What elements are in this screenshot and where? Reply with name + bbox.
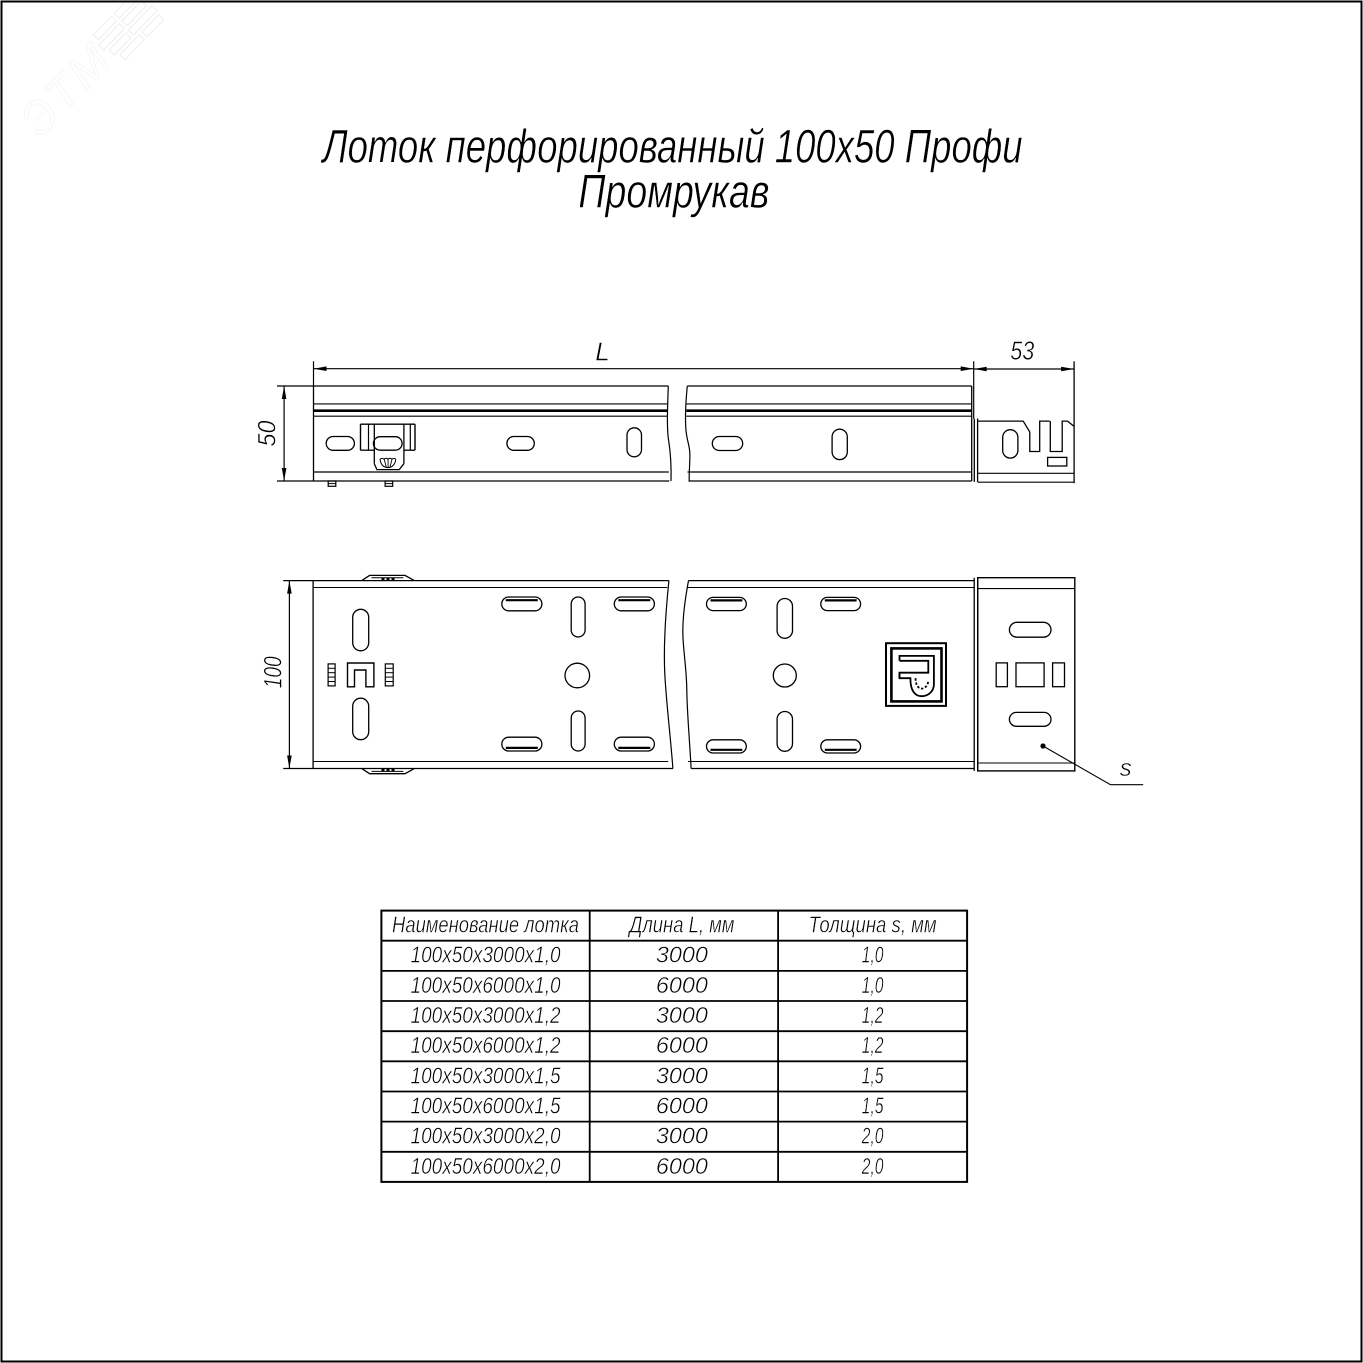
svg-text:3000: 3000 bbox=[656, 1123, 708, 1149]
svg-text:100х50х3000х2,0: 100х50х3000х2,0 bbox=[411, 1123, 561, 1149]
svg-text:1,5: 1,5 bbox=[862, 1062, 884, 1088]
svg-text:3000: 3000 bbox=[656, 1062, 708, 1088]
svg-text:3000: 3000 bbox=[656, 1002, 708, 1028]
svg-text:s: s bbox=[1120, 755, 1132, 782]
svg-text:100х50х6000х1,0: 100х50х6000х1,0 bbox=[411, 972, 561, 998]
svg-text:100х50х6000х1,2: 100х50х6000х1,2 bbox=[411, 1032, 561, 1058]
svg-text:100х50х6000х1,5: 100х50х6000х1,5 bbox=[411, 1093, 561, 1119]
svg-text:2,0: 2,0 bbox=[861, 1123, 884, 1149]
svg-text:1,2: 1,2 bbox=[862, 1032, 884, 1058]
svg-text:100х50х3000х1,5: 100х50х3000х1,5 bbox=[411, 1062, 561, 1088]
svg-text:Толщина s, мм: Толщина s, мм bbox=[809, 912, 937, 938]
svg-text:6000: 6000 bbox=[656, 1153, 708, 1179]
svg-text:Наименование лотка: Наименование лотка bbox=[392, 912, 579, 938]
svg-text:1,2: 1,2 bbox=[862, 1002, 884, 1028]
svg-text:1,5: 1,5 bbox=[862, 1093, 884, 1119]
svg-text:2,0: 2,0 bbox=[861, 1153, 884, 1179]
svg-text:3000: 3000 bbox=[656, 942, 708, 968]
svg-text:L: L bbox=[595, 337, 609, 367]
svg-text:6000: 6000 bbox=[656, 972, 708, 998]
svg-text:Промрукав: Промрукав bbox=[578, 165, 769, 218]
svg-text:6000: 6000 bbox=[656, 1093, 708, 1119]
svg-text:50: 50 bbox=[253, 420, 281, 446]
svg-text:100х50х6000х2,0: 100х50х6000х2,0 bbox=[411, 1153, 561, 1179]
svg-text:100х50х3000х1,0: 100х50х3000х1,0 bbox=[411, 942, 561, 968]
svg-text:53: 53 bbox=[1010, 336, 1034, 366]
svg-text:100: 100 bbox=[259, 656, 287, 688]
svg-text:6000: 6000 bbox=[656, 1032, 708, 1058]
svg-text:1,0: 1,0 bbox=[862, 972, 884, 998]
svg-text:1,0: 1,0 bbox=[862, 942, 884, 968]
svg-text:100х50х3000х1,2: 100х50х3000х1,2 bbox=[411, 1002, 561, 1028]
svg-text:Длина L, мм: Длина L, мм bbox=[627, 912, 735, 938]
